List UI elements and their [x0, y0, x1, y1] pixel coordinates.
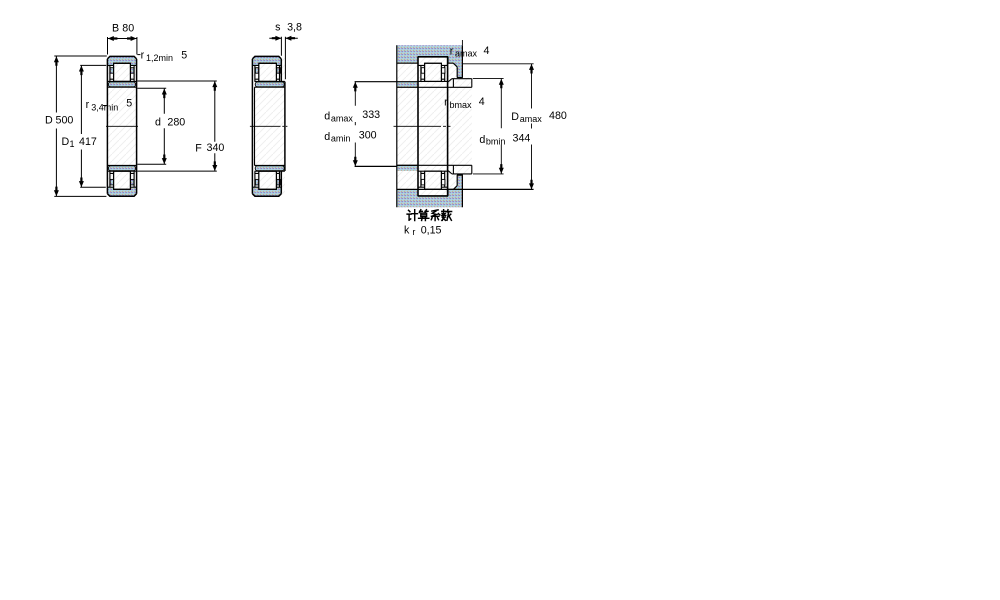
svg-text:3,4min: 3,4min [91, 102, 118, 112]
svg-text:d: d [324, 131, 330, 143]
svg-text:amax: amax [331, 113, 354, 123]
svg-text:1: 1 [70, 139, 75, 149]
svg-text:0,15: 0,15 [421, 224, 442, 236]
svg-text:5: 5 [126, 98, 132, 110]
svg-text:D: D [511, 111, 519, 123]
svg-text:D: D [62, 136, 70, 148]
svg-text:417: 417 [79, 136, 97, 148]
svg-text:amax: amax [455, 49, 478, 59]
svg-text:333: 333 [362, 109, 380, 121]
svg-text:F: F [195, 142, 202, 154]
svg-text:r: r [444, 97, 448, 109]
svg-text:344: 344 [513, 133, 531, 145]
svg-text:r: r [450, 45, 454, 57]
svg-text:B: B [112, 23, 119, 35]
svg-text:5: 5 [181, 49, 187, 61]
svg-text:k: k [404, 224, 410, 236]
svg-text:s: s [275, 21, 280, 33]
svg-text:bmin: bmin [486, 137, 506, 147]
svg-text:500: 500 [56, 115, 74, 127]
svg-text:amin: amin [331, 134, 351, 144]
svg-text:80: 80 [122, 23, 134, 35]
svg-text:bmax: bmax [450, 100, 473, 110]
svg-text:r: r [86, 99, 90, 111]
svg-text:4: 4 [484, 45, 490, 57]
svg-text:1,2min: 1,2min [146, 53, 173, 63]
svg-text:d: d [479, 134, 485, 146]
svg-text:d: d [324, 111, 330, 123]
svg-text:amax: amax [520, 114, 543, 124]
svg-text:480: 480 [549, 110, 567, 122]
svg-text:340: 340 [207, 142, 225, 154]
svg-text:280: 280 [167, 117, 185, 129]
svg-text:3,8: 3,8 [287, 21, 302, 33]
svg-text:d: d [155, 117, 161, 129]
svg-text:D: D [45, 115, 53, 127]
svg-text:r: r [141, 50, 145, 62]
svg-text:4: 4 [479, 96, 485, 108]
svg-text:r: r [412, 227, 415, 237]
svg-text:300: 300 [359, 130, 377, 142]
